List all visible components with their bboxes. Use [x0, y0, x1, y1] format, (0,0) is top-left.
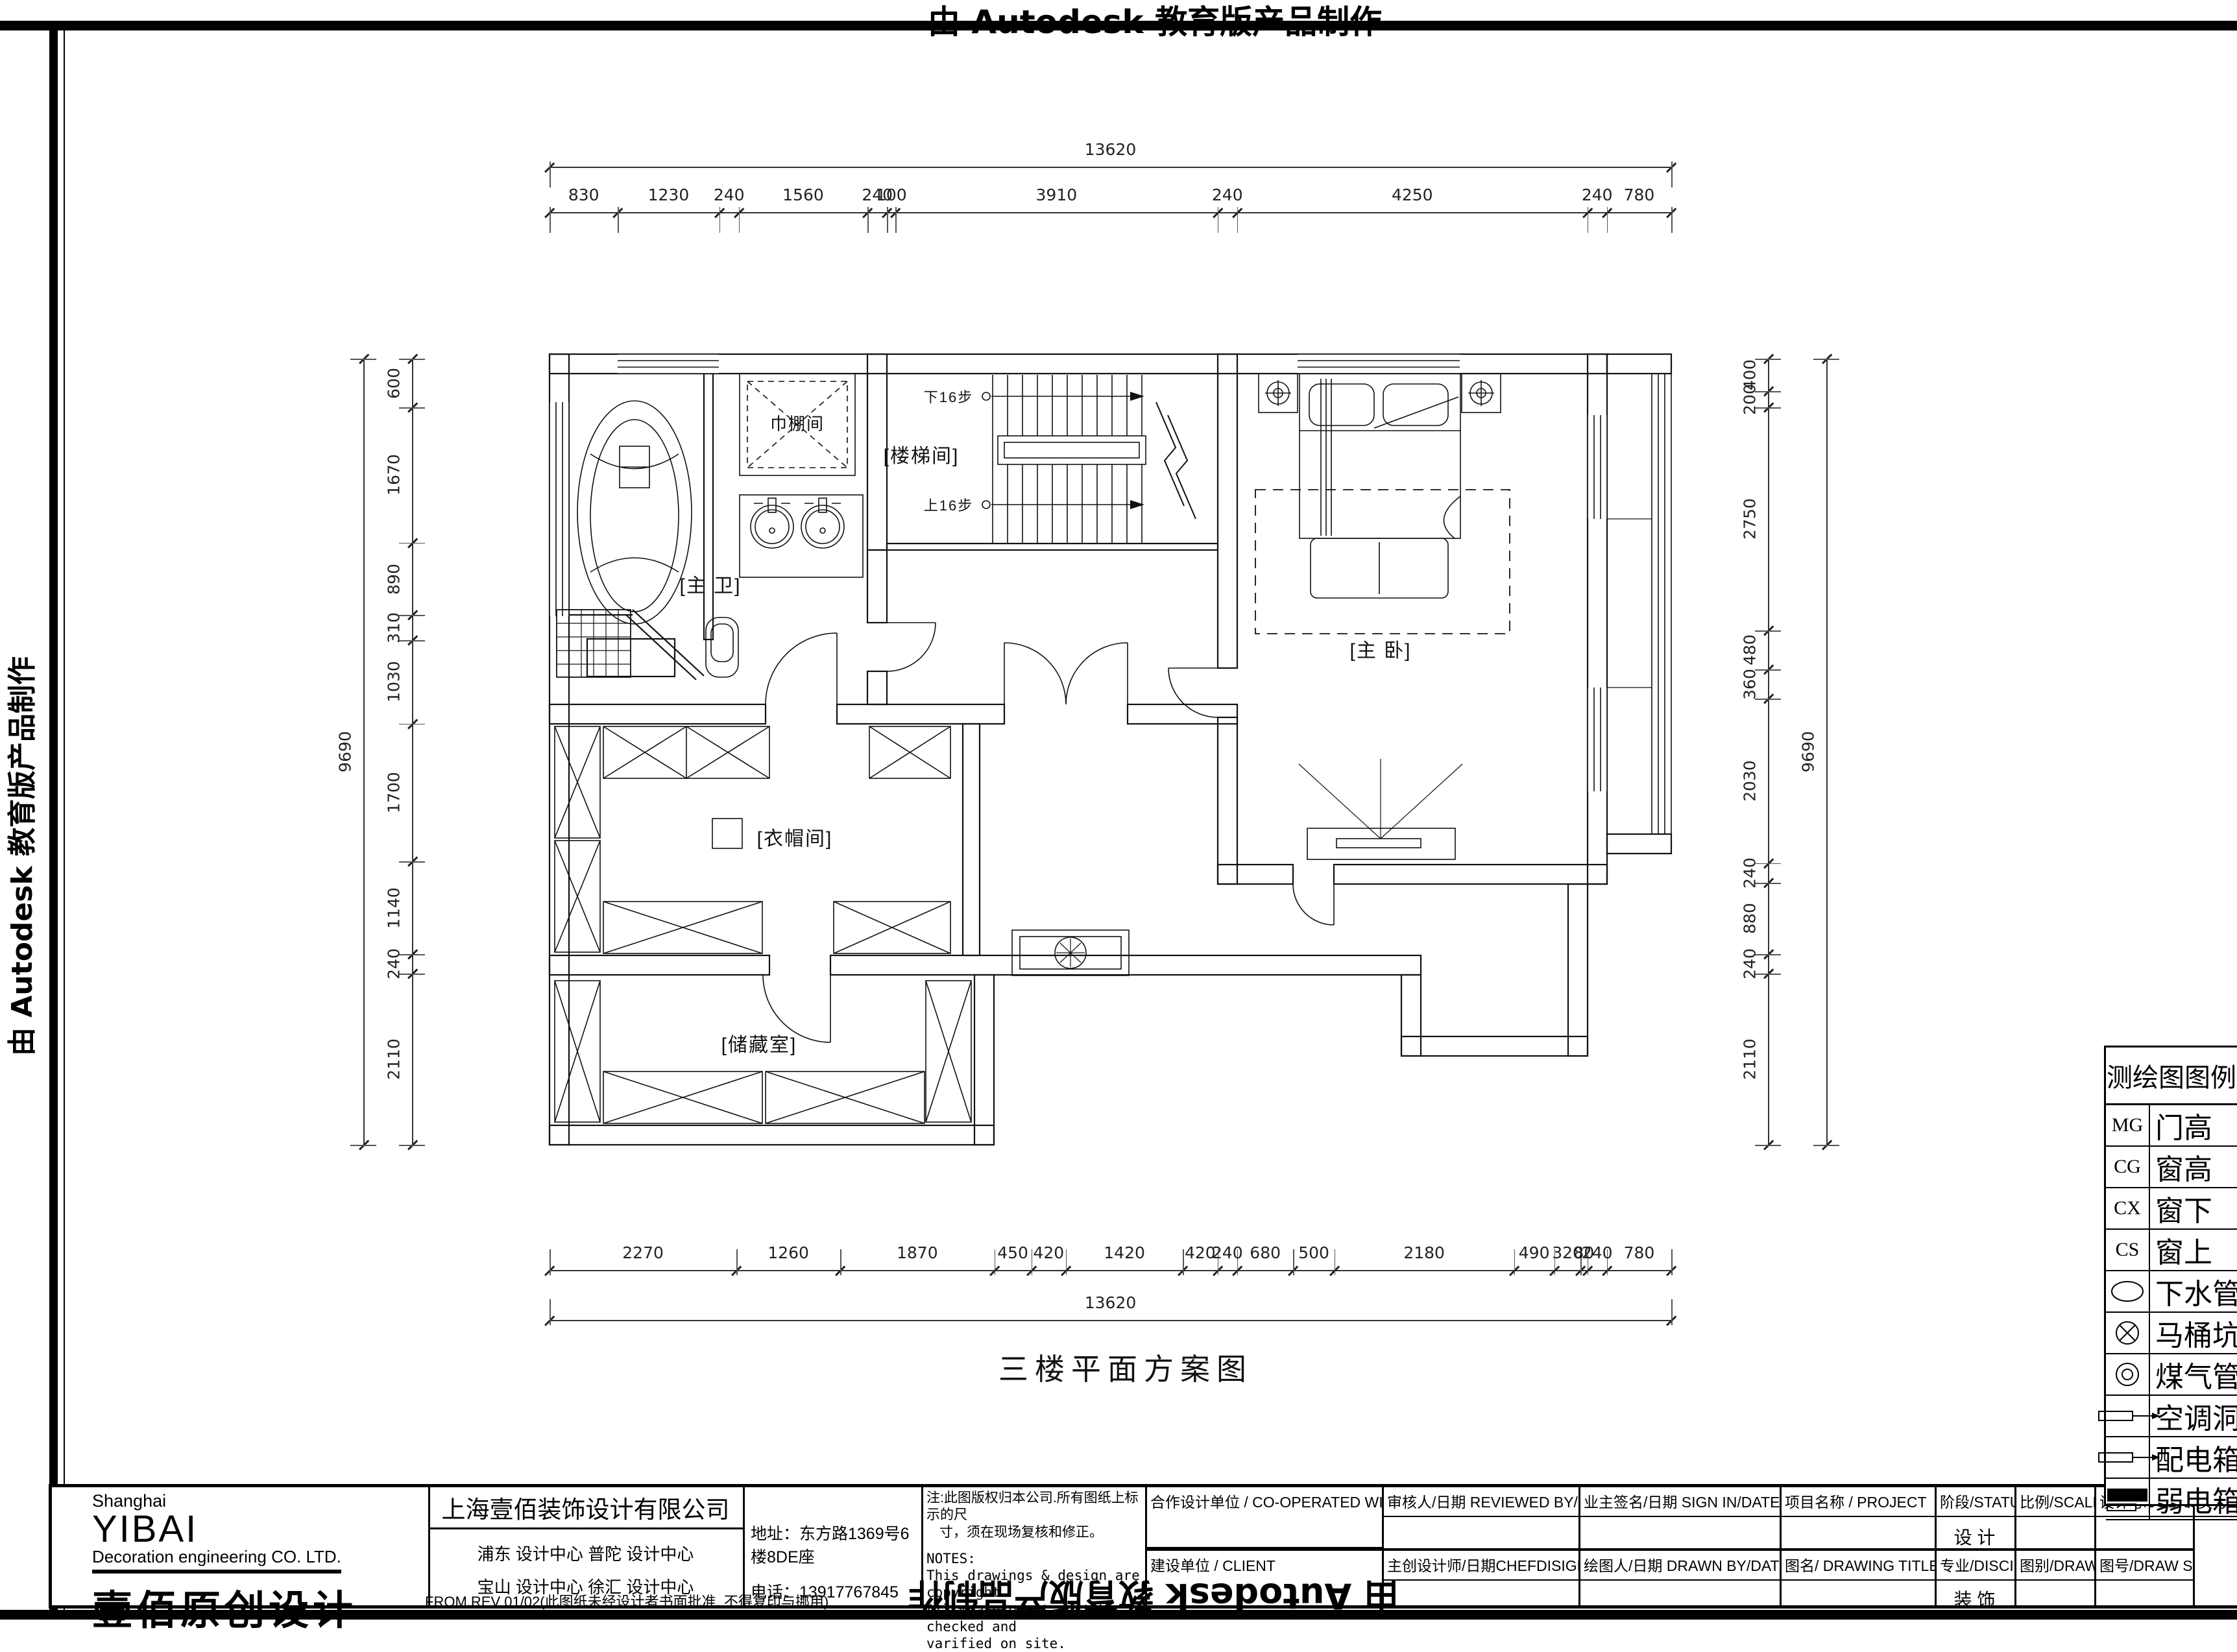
- company-logo: Shanghai YIBAI Decoration engineering CO…: [52, 1487, 428, 1605]
- arrow-rect-icon: [2106, 1396, 2150, 1436]
- legend-label: 空调洞: [2150, 1396, 2237, 1436]
- cell-address: 地址：东方路1369号6楼8DE座 电话：13917767845: [743, 1487, 921, 1605]
- legend-label: 窗高: [2150, 1147, 2237, 1187]
- legend-row: CG窗高: [2106, 1147, 2237, 1188]
- cloakroom-wardrobes: [555, 726, 950, 953]
- circle-x-icon: [2106, 1313, 2150, 1353]
- bathtub: [577, 401, 692, 624]
- doors: [763, 623, 1334, 1042]
- circle-double-icon: [2106, 1354, 2150, 1395]
- storage-cabinets: [555, 981, 971, 1123]
- logo-yibai: YIBAI: [92, 1511, 428, 1547]
- legend-label: 下水管: [2150, 1271, 2237, 1311]
- drawing-sheet: 由 Autodesk 教育版产品制作 由 Autodesk 教育版产品制作 由 …: [0, 0, 2237, 1622]
- bar-arrow-icon: [2106, 1437, 2150, 1478]
- legend-label: 配电箱: [2150, 1437, 2237, 1478]
- legend-table: 测绘图图例 MG门高CG窗高CX窗下CS窗上下水管马桶坑煤气管空调洞配电箱弱电箱: [2104, 1046, 2237, 1506]
- address: 地址：东方路1369号6楼8DE座: [743, 1487, 921, 1568]
- centers-row1: 浦东 设计中心 普陀 设计中心: [428, 1529, 743, 1565]
- legend-key: MG: [2106, 1105, 2150, 1145]
- shower: [740, 374, 855, 475]
- console-table: [1012, 930, 1129, 976]
- toilet: [706, 617, 738, 677]
- cell-coop: 合作设计单位 / CO-OPERATED WITH: [1145, 1487, 1382, 1548]
- cell-scale: 比例/SCALE: [2014, 1487, 2094, 1548]
- legend-key: CX: [2106, 1188, 2150, 1228]
- cell-discipline: 专业/DISCIPLINE 装 饰: [1935, 1551, 2014, 1609]
- bar-solid-icon: [2106, 1479, 2150, 1519]
- bed-bench: [1311, 538, 1448, 598]
- double-sink-vanity: [740, 495, 863, 577]
- legend-row: 下水管: [2106, 1271, 2237, 1313]
- legend-row: 煤气管: [2106, 1354, 2237, 1396]
- legend-label: 窗上: [2150, 1230, 2237, 1270]
- cell-reviewed: 审核人/日期 REVIEWED BY/DATE: [1382, 1487, 1578, 1548]
- cell-status: 阶段/STATUS 设 计: [1935, 1487, 2014, 1548]
- cell-drawtype: 图别/DRAW TYPE: [2014, 1551, 2094, 1609]
- legend-row: 空调洞: [2106, 1396, 2237, 1437]
- legend-row: 配电箱: [2106, 1437, 2237, 1479]
- legend-label: 弱电箱: [2150, 1479, 2237, 1519]
- company-name: 上海壹佰装饰设计有限公司: [428, 1487, 743, 1529]
- cell-project: 项目名称 / PROJECT: [1780, 1487, 1935, 1548]
- tv-cabinet: [1299, 759, 1462, 859]
- autodesk-banner-top: 由 Autodesk 教育版产品制作: [928, 0, 1382, 43]
- legend-key: CG: [2106, 1147, 2150, 1187]
- legend-row: 马桶坑: [2106, 1313, 2237, 1354]
- ellipse-icon: [2106, 1271, 2150, 1311]
- legend-label: 马桶坑: [2150, 1313, 2237, 1353]
- legend-row: 弱电箱: [2106, 1479, 2237, 1520]
- bedroom-rug: [1255, 490, 1510, 634]
- bed: [1300, 374, 1460, 538]
- legend-key: CS: [2106, 1230, 2150, 1270]
- legend-title: 测绘图图例: [2106, 1047, 2237, 1105]
- nightstands: [1259, 374, 1501, 413]
- cell-sign: 业主签名/日期 SIGN IN/DATE: [1578, 1487, 1780, 1548]
- staircase: [982, 375, 1196, 544]
- legend-row: CX窗下: [2106, 1188, 2237, 1230]
- revision-footnote: FROM.REV 01/02(此图纸未经设计者书面批准, 不得复印与挪用): [425, 1590, 828, 1611]
- autodesk-banner-bottom: 由 Autodesk 教育版产品制作: [908, 1574, 1399, 1625]
- status-value: 设 计: [1935, 1517, 2014, 1550]
- cell-chief: 主创设计师/日期CHEFDISIGNER/DATE: [1382, 1551, 1578, 1609]
- legend-rows: MG门高CG窗高CX窗下CS窗上下水管马桶坑煤气管空调洞配电箱弱电箱: [2106, 1105, 2237, 1520]
- legend-row: MG门高: [2106, 1105, 2237, 1147]
- cell-drawing-title: 图名/ DRAWING TITLE: [1780, 1551, 1935, 1609]
- cell-company: 上海壹佰装饰设计有限公司 浦东 设计中心 普陀 设计中心 宝山 设计中心 徐汇 …: [428, 1487, 743, 1605]
- floor-plan: [0, 0, 2237, 1622]
- legend-label: 窗下: [2150, 1188, 2237, 1228]
- discipline-value: 装 饰: [1935, 1581, 2014, 1612]
- logo-cn: 壹佰原创设计: [92, 1577, 428, 1636]
- cell-drawsn: 图号/DRAW SN: [2094, 1551, 2193, 1609]
- legend-row: CS窗上: [2106, 1230, 2237, 1271]
- note-cn: 注:此图版权归本公司.所有图纸上标示的尺寸，须在现场复核和修正。: [921, 1487, 1145, 1541]
- legend-label: 煤气管: [2150, 1354, 2237, 1395]
- cell-drawn: 绘图人/日期 DRAWN BY/DATE: [1578, 1551, 1780, 1609]
- windows: [550, 354, 1671, 834]
- legend-label: 门高: [2150, 1105, 2237, 1145]
- walls: [550, 354, 1671, 1145]
- logo-sub: Decoration engineering CO. LTD.: [92, 1547, 341, 1574]
